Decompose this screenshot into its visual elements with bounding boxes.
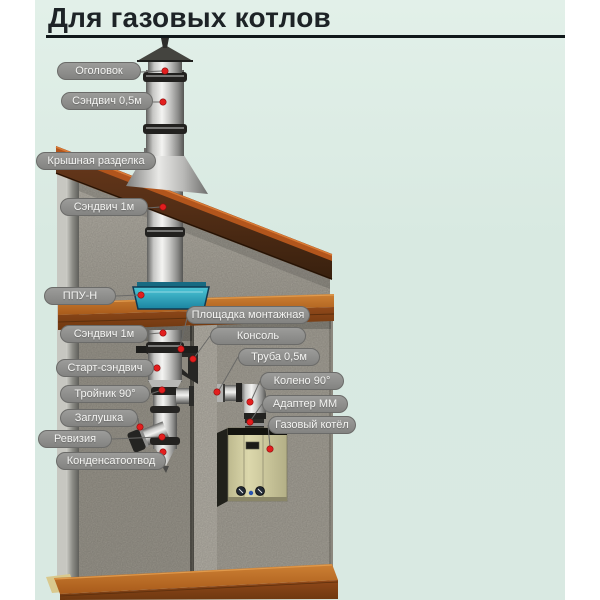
label-ogolovok: Оголовок xyxy=(57,62,141,80)
label-zaglushka: Заглушка xyxy=(60,409,138,427)
label-truba-05m: Труба 0,5м xyxy=(238,348,320,366)
label-kondensatootvod: Конденсатоотвод xyxy=(56,452,166,470)
label-ppu-n: ППУ-Н xyxy=(44,287,116,305)
label-sandwich-1m-lower: Сэндвич 1м xyxy=(60,325,148,343)
label-gazovyy-kotel: Газовый котёл xyxy=(268,416,356,434)
label-koleno-90: Колено 90° xyxy=(260,372,344,390)
label-sandwich-05m: Сэндвич 0,5м xyxy=(61,92,153,110)
label-troynik-90: Тройник 90° xyxy=(60,385,150,403)
title-underline xyxy=(46,35,565,38)
label-kryshnaya-razdelka: Крышная разделка xyxy=(36,152,156,170)
boiler-button xyxy=(249,491,253,495)
page: Для газовых котлов Оголовок Сэндвич 0,5м… xyxy=(0,0,600,600)
cap-finial xyxy=(161,38,169,48)
label-start-sandwich: Старт-сэндвич xyxy=(56,359,154,377)
label-reviziya: Ревизия xyxy=(38,430,112,448)
page-title: Для газовых котлов xyxy=(48,2,331,34)
label-konsol: Консоль xyxy=(210,327,306,345)
label-adapter-mm: Адаптер ММ xyxy=(262,395,348,413)
gas-boiler xyxy=(217,428,287,507)
label-sandwich-1m-upper: Сэндвич 1м xyxy=(60,198,148,216)
label-ploshchadka-montazhnaya: Площадка монтажная xyxy=(186,306,310,324)
